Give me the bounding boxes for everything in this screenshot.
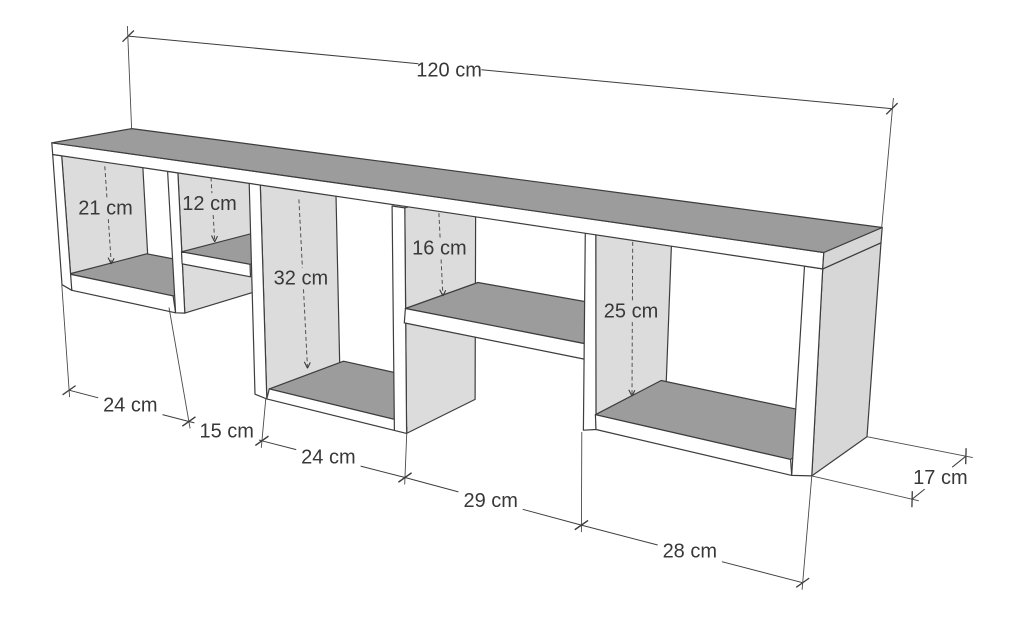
svg-text:16 cm: 16 cm — [412, 238, 466, 260]
svg-text:32 cm: 32 cm — [274, 268, 328, 290]
svg-text:15 cm: 15 cm — [199, 421, 253, 443]
svg-text:12 cm: 12 cm — [182, 193, 236, 215]
svg-text:28 cm: 28 cm — [663, 541, 717, 563]
svg-text:120 cm: 120 cm — [416, 60, 482, 82]
svg-text:24 cm: 24 cm — [103, 395, 157, 417]
svg-text:29 cm: 29 cm — [463, 490, 517, 512]
svg-text:21 cm: 21 cm — [78, 197, 132, 219]
svg-text:24 cm: 24 cm — [301, 447, 355, 469]
svg-text:17 cm: 17 cm — [913, 467, 967, 489]
svg-text:25 cm: 25 cm — [604, 300, 658, 322]
